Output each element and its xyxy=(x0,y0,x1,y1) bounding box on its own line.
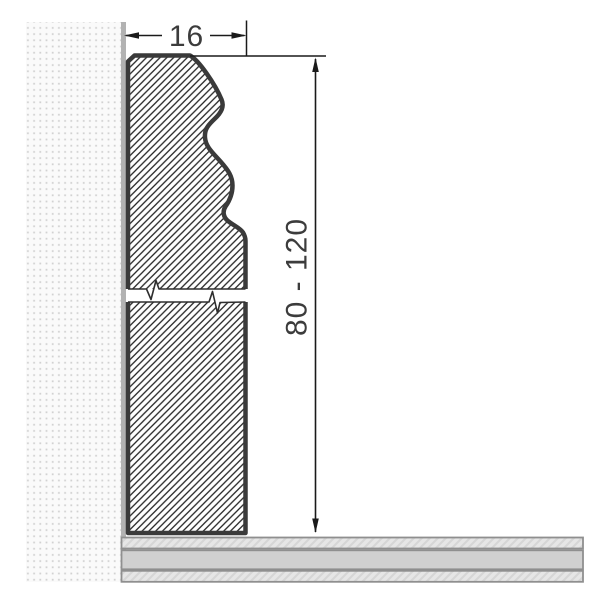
drawing-canvas: 16 80 - 120 xyxy=(0,0,604,604)
width-dimension: 16 xyxy=(124,20,247,56)
height-arrow-bottom-icon xyxy=(312,519,319,534)
wall-section xyxy=(26,22,126,582)
wall-texture xyxy=(26,22,121,582)
width-dimension-label: 16 xyxy=(169,20,204,53)
skirting-profile xyxy=(128,56,246,534)
height-arrow-top-icon xyxy=(312,58,319,73)
skirting-board-technical-drawing: 16 80 - 120 xyxy=(0,0,604,604)
width-arrow-left-icon xyxy=(124,32,139,39)
profile-lower-fill xyxy=(128,302,246,533)
width-arrow-right-icon xyxy=(232,32,247,39)
floor-bottom-layer xyxy=(122,571,584,582)
wall-plaster-strip xyxy=(121,22,126,582)
floor-middle-layer xyxy=(122,550,584,569)
floor-top-layer xyxy=(122,538,584,549)
height-dimension-label: 80 - 120 xyxy=(281,218,314,336)
floor-section xyxy=(122,538,584,582)
